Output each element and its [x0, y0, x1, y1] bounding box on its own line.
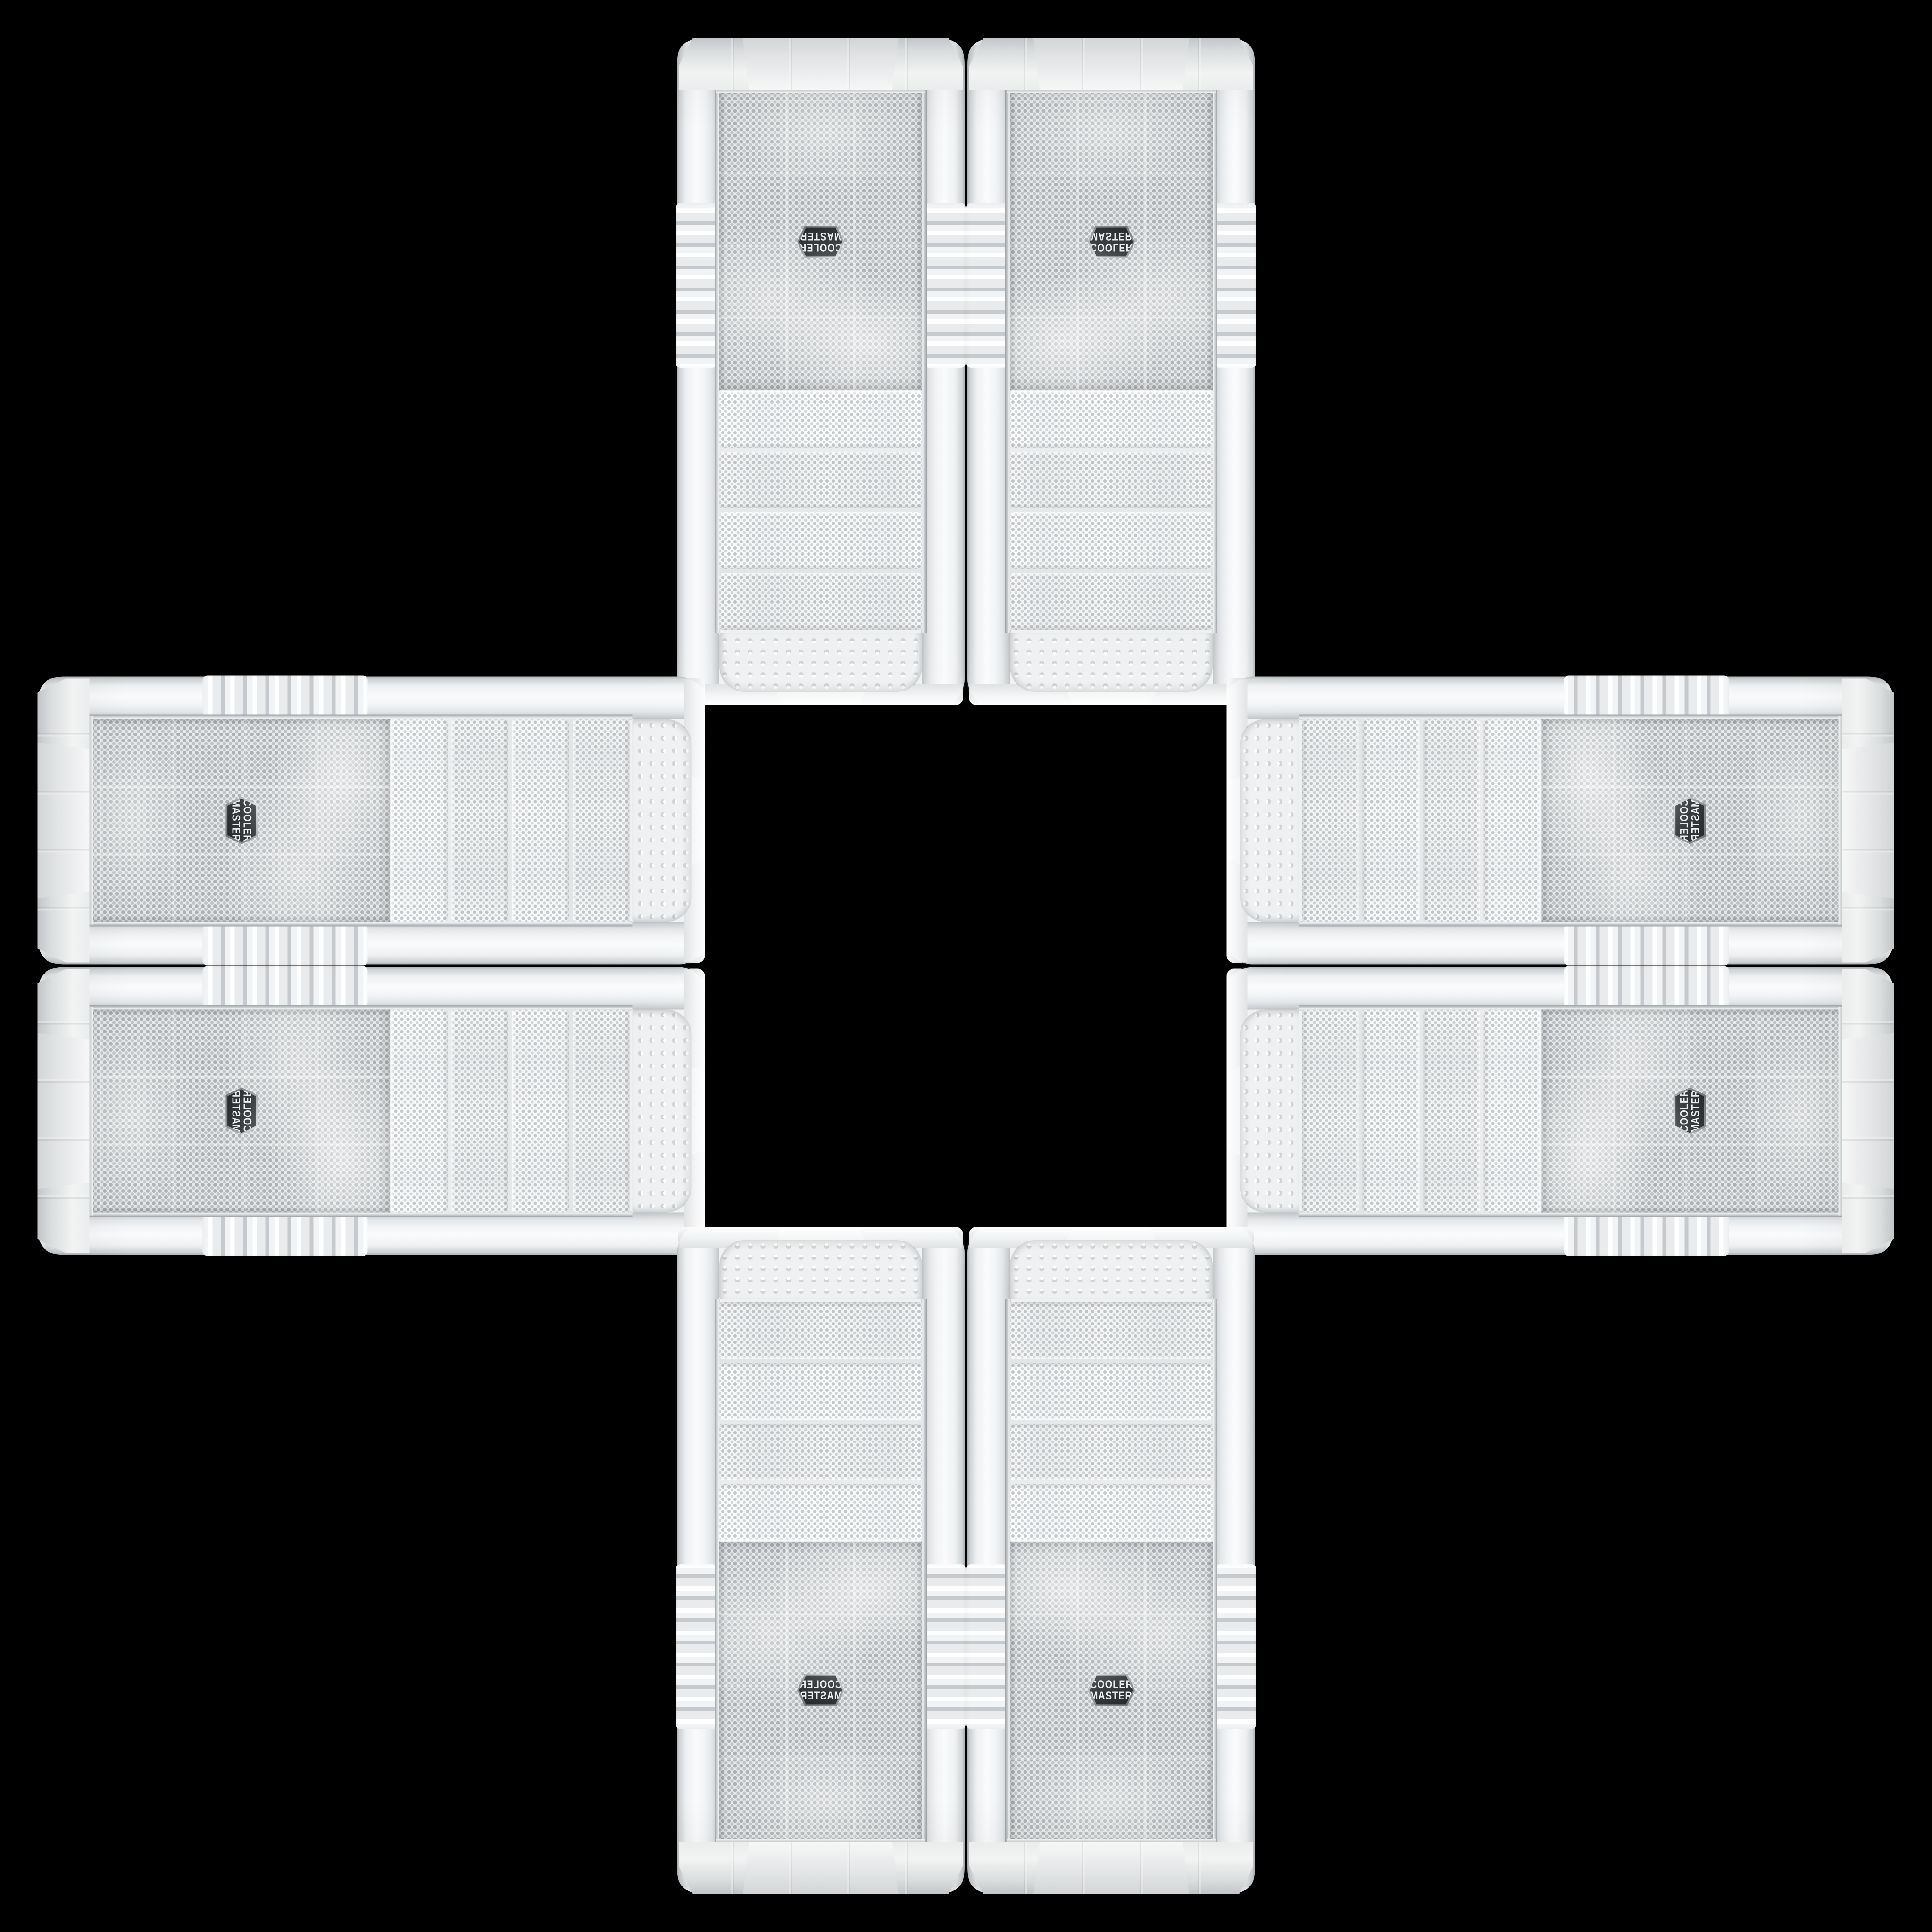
drive-bay-cover [719, 1302, 922, 1359]
drive-bay-cover [452, 719, 508, 922]
drive-bay-cover [719, 391, 922, 448]
drive-bay-cover [1010, 573, 1213, 630]
bottom-cap-grooves [969, 38, 1253, 90]
drive-bay-cover [1423, 719, 1480, 922]
grip-ribs-left [203, 676, 368, 717]
badge-text-line2: MASTER [1690, 799, 1701, 841]
bottom-bezel-cap [969, 1842, 1253, 1894]
drive-bay-cover [719, 513, 922, 569]
front-intake-mesh: COOLER MASTER [90, 1010, 390, 1213]
bottom-bezel-cap [679, 1842, 963, 1894]
silver-trim-bottom [716, 89, 925, 93]
grip-ribs-left [1564, 1215, 1729, 1256]
grip-ribs-left [203, 1215, 368, 1256]
drive-bay-cover [573, 719, 629, 922]
cooler-master-logo-icon: COOLER MASTER [1673, 797, 1707, 844]
top-vent-mesh [633, 1010, 692, 1213]
badge-text-line1: COOLER [242, 799, 253, 842]
side-rail-right [1231, 922, 1887, 965]
drive-bay-cover [512, 719, 569, 922]
case-left-upper: COOLER MASTER [38, 677, 705, 965]
badge-text-line2: MASTER [799, 1690, 842, 1701]
side-rail-left [45, 677, 701, 719]
pc-case: COOLER MASTER [677, 38, 965, 705]
grip-ribs-left [966, 203, 1008, 368]
top-vent-mesh [719, 633, 922, 692]
side-rail-right [677, 45, 719, 701]
pc-case: COOLER MASTER [1227, 967, 1894, 1255]
case-left-lower: COOLER MASTER [38, 967, 705, 1255]
drive-bay-cover [1010, 1484, 1213, 1541]
bottom-cap-grooves [1842, 969, 1894, 1253]
drive-bay-cover [719, 1424, 922, 1480]
drive-bay-cover [1483, 1010, 1540, 1213]
drive-bay-strips [1010, 1302, 1213, 1541]
cooler-master-badge-face: COOLER MASTER [226, 1090, 258, 1133]
drive-bay-cover [512, 1010, 569, 1213]
silver-trim-bottom [1007, 1839, 1216, 1843]
bottom-cap-grooves [1842, 679, 1894, 963]
case-montage-scene: COOLER MASTER [0, 0, 1932, 1932]
silver-trim-bottom [1839, 716, 1843, 925]
pc-case: COOLER MASTER [1227, 677, 1894, 965]
drive-bay-strips [391, 1010, 630, 1213]
grip-ribs-right [1564, 966, 1729, 1008]
front-intake-mesh: COOLER MASTER [1010, 90, 1213, 390]
grip-ribs-right [676, 1564, 717, 1729]
cooler-master-badge-face: COOLER MASTER [1090, 1674, 1133, 1706]
case-right-lower: COOLER MASTER [1227, 967, 1894, 1255]
badge-text-line2: MASTER [1090, 231, 1133, 242]
cooler-master-logo-icon: COOLER MASTER [797, 225, 844, 259]
side-rail-left [922, 1231, 965, 1887]
grip-ribs-right [203, 966, 368, 1008]
drive-bay-cover [1010, 513, 1213, 569]
side-rail-right [45, 967, 701, 1010]
bottom-cap-grooves [969, 1842, 1253, 1894]
drive-bay-cover [1010, 1363, 1213, 1419]
top-vent-mesh [1010, 633, 1213, 692]
side-rail-left [967, 45, 1010, 701]
bottom-cap-grooves [679, 1842, 963, 1894]
grip-ribs-right [203, 924, 368, 966]
bottom-bezel-cap [38, 969, 90, 1253]
top-vent-mesh [633, 719, 692, 922]
silver-trim-bottom [716, 1839, 925, 1843]
silver-trim-bottom [1007, 89, 1216, 93]
cooler-master-badge-face: COOLER MASTER [1090, 226, 1133, 258]
badge-text-line2: MASTER [799, 231, 842, 242]
front-intake-mesh: COOLER MASTER [1542, 719, 1842, 922]
side-rail-left [1231, 677, 1887, 719]
silver-trim-bottom [89, 716, 93, 925]
drive-bay-cover [1010, 391, 1213, 448]
front-intake-mesh: COOLER MASTER [719, 1542, 922, 1842]
side-rail-right [1213, 45, 1255, 701]
bottom-bezel-cap [38, 679, 90, 963]
cooler-master-logo-icon: COOLER MASTER [225, 1088, 259, 1135]
front-intake-mesh: COOLER MASTER [1542, 1010, 1842, 1213]
badge-text-line1: COOLER [799, 242, 842, 253]
drive-bay-cover [1010, 1302, 1213, 1359]
case-top-right: COOLER MASTER [967, 38, 1255, 705]
drive-bay-strips [391, 719, 630, 922]
cooler-master-badge-face: COOLER MASTER [1674, 1090, 1706, 1133]
side-rail-left [922, 45, 965, 701]
drive-bay-cover [719, 1484, 922, 1541]
bottom-bezel-cap [1842, 679, 1894, 963]
bottom-cap-grooves [38, 679, 90, 963]
top-vent-mesh [1240, 1010, 1299, 1213]
drive-bay-cover [719, 452, 922, 508]
badge-text-line1: COOLER [1090, 1679, 1133, 1690]
cooler-master-badge-face: COOLER MASTER [226, 799, 258, 842]
cooler-master-badge-face: COOLER MASTER [799, 1674, 842, 1706]
badge-text-line2: MASTER [231, 799, 241, 841]
case-top-left: COOLER MASTER [677, 38, 965, 705]
drive-bay-cover [391, 719, 448, 922]
drive-bay-cover [1363, 719, 1419, 922]
pc-case: COOLER MASTER [38, 967, 705, 1255]
pc-case: COOLER MASTER [967, 1227, 1255, 1894]
bottom-cap-grooves [38, 969, 90, 1253]
cooler-master-badge-face: COOLER MASTER [799, 226, 842, 258]
drive-bay-cover [1302, 1010, 1359, 1213]
drive-bay-strips [719, 391, 922, 630]
top-vent-mesh [1240, 719, 1299, 922]
drive-bay-cover [452, 1010, 508, 1213]
drive-bay-strips [1302, 719, 1541, 922]
bottom-bezel-cap [1842, 969, 1894, 1253]
grip-ribs-right [1215, 203, 1256, 368]
front-intake-mesh: COOLER MASTER [719, 90, 922, 390]
cooler-master-logo-icon: COOLER MASTER [1088, 1673, 1135, 1707]
badge-text-line2: MASTER [1690, 1090, 1701, 1132]
grip-ribs-left [924, 203, 966, 368]
badge-text-line1: COOLER [799, 1679, 842, 1690]
drive-bay-cover [1483, 719, 1540, 922]
side-rail-left [967, 1231, 1010, 1887]
pc-case: COOLER MASTER [38, 677, 705, 965]
side-rail-left [45, 1213, 701, 1255]
badge-text-line1: COOLER [1090, 242, 1133, 253]
case-bottom-left: COOLER MASTER [677, 1227, 965, 1894]
drive-bay-cover [719, 573, 922, 630]
case-bottom-right: COOLER MASTER [967, 1227, 1255, 1894]
cooler-master-logo-icon: COOLER MASTER [797, 1673, 844, 1707]
pc-case: COOLER MASTER [967, 38, 1255, 705]
grip-ribs-right [676, 203, 717, 368]
cooler-master-logo-icon: COOLER MASTER [1673, 1088, 1707, 1135]
top-vent-mesh [1010, 1240, 1213, 1299]
grip-ribs-left [1564, 676, 1729, 717]
drive-bay-cover [1423, 1010, 1480, 1213]
bottom-bezel-cap [679, 38, 963, 90]
top-vent-mesh [719, 1240, 922, 1299]
drive-bay-strips [1010, 391, 1213, 630]
grip-ribs-left [924, 1564, 966, 1729]
drive-bay-cover [1010, 452, 1213, 508]
badge-text-line1: COOLER [242, 1090, 253, 1133]
front-intake-mesh: COOLER MASTER [90, 719, 390, 922]
silver-trim-bottom [89, 1007, 93, 1216]
bottom-bezel-cap [969, 38, 1253, 90]
badge-text-line1: COOLER [1679, 799, 1690, 842]
drive-bay-strips [719, 1302, 922, 1541]
drive-bay-cover [1010, 1424, 1213, 1480]
badge-text-line2: MASTER [1090, 1690, 1133, 1701]
side-rail-right [45, 922, 701, 965]
side-rail-left [1231, 1213, 1887, 1255]
drive-bay-cover [573, 1010, 629, 1213]
front-intake-mesh: COOLER MASTER [1010, 1542, 1213, 1842]
drive-bay-cover [1302, 719, 1359, 922]
side-rail-right [677, 1231, 719, 1887]
side-rail-right [1231, 967, 1887, 1010]
case-right-upper: COOLER MASTER [1227, 677, 1894, 965]
grip-ribs-right [1215, 1564, 1256, 1729]
drive-bay-cover [719, 1363, 922, 1419]
grip-ribs-left [966, 1564, 1008, 1729]
badge-text-line2: MASTER [231, 1090, 241, 1132]
drive-bay-strips [1302, 1010, 1541, 1213]
drive-bay-cover [1363, 1010, 1419, 1213]
grip-ribs-right [1564, 924, 1729, 966]
silver-trim-bottom [1839, 1007, 1843, 1216]
cooler-master-logo-icon: COOLER MASTER [1088, 225, 1135, 259]
side-rail-right [1213, 1231, 1255, 1887]
drive-bay-cover [391, 1010, 448, 1213]
pc-case: COOLER MASTER [677, 1227, 965, 1894]
cooler-master-badge-face: COOLER MASTER [1674, 799, 1706, 842]
bottom-cap-grooves [679, 38, 963, 90]
cooler-master-logo-icon: COOLER MASTER [225, 797, 259, 844]
badge-text-line1: COOLER [1679, 1090, 1690, 1133]
